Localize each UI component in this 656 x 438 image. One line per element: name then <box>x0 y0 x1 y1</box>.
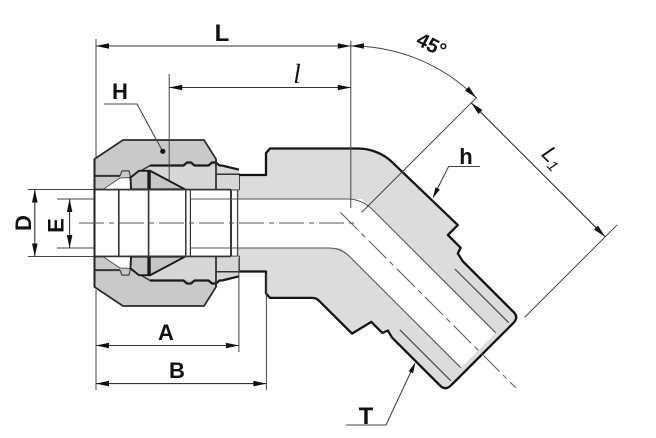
svg-text:B: B <box>169 358 185 383</box>
svg-text:E: E <box>44 218 69 233</box>
svg-text:A: A <box>158 320 174 345</box>
svg-text:T: T <box>359 403 374 430</box>
svg-text:H: H <box>112 79 128 104</box>
svg-text:h: h <box>459 144 472 169</box>
svg-text:l: l <box>293 59 301 89</box>
svg-text:D: D <box>11 215 36 231</box>
svg-text:L: L <box>215 20 230 47</box>
